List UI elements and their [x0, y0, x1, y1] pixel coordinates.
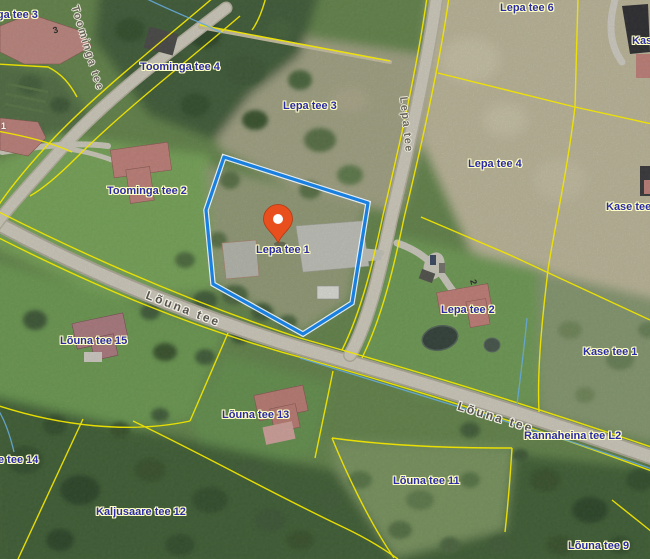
grain-overlay-light [0, 0, 650, 559]
map-canvas[interactable] [0, 0, 650, 559]
map-viewport[interactable]: Toominga tee Lepa tee Lõuna tee Lõuna te… [0, 0, 650, 559]
marker-hole [273, 214, 283, 224]
